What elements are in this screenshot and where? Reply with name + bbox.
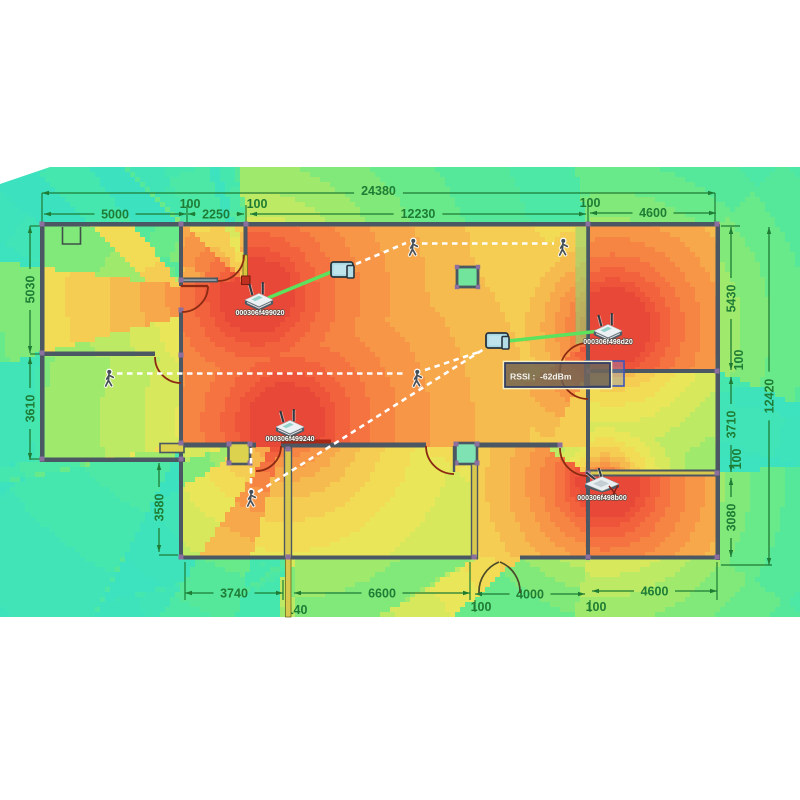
svg-text:5430: 5430 xyxy=(725,285,739,313)
svg-text:100: 100 xyxy=(730,449,744,470)
svg-text:5000: 5000 xyxy=(101,208,129,222)
svg-text:5030: 5030 xyxy=(24,276,38,304)
svg-text:100: 100 xyxy=(732,350,746,371)
svg-text:000306f498b00: 000306f498b00 xyxy=(577,495,627,502)
svg-text:3080: 3080 xyxy=(725,504,739,532)
svg-text:3710: 3710 xyxy=(725,411,739,439)
svg-text:4600: 4600 xyxy=(641,585,669,599)
svg-text:100: 100 xyxy=(586,600,607,614)
svg-text:000306f499020: 000306f499020 xyxy=(235,310,284,317)
svg-text:12420: 12420 xyxy=(763,379,777,414)
svg-text:RSSI :: RSSI : xyxy=(510,372,535,382)
svg-text:100: 100 xyxy=(247,197,268,211)
svg-text:12230: 12230 xyxy=(401,207,436,221)
svg-text:24380: 24380 xyxy=(361,184,396,198)
svg-text:100: 100 xyxy=(471,600,492,614)
svg-text:3610: 3610 xyxy=(24,395,38,423)
svg-text:-62dBm: -62dBm xyxy=(540,372,572,382)
svg-text:2250: 2250 xyxy=(202,208,230,222)
svg-text:000306f498d20: 000306f498d20 xyxy=(583,339,633,346)
svg-text:6600: 6600 xyxy=(368,587,396,601)
svg-text:100: 100 xyxy=(180,197,201,211)
svg-text:000306f499240: 000306f499240 xyxy=(265,436,314,443)
svg-text:3580: 3580 xyxy=(153,494,167,522)
svg-text:3740: 3740 xyxy=(220,587,248,601)
svg-text:4600: 4600 xyxy=(639,206,667,220)
svg-text:100: 100 xyxy=(580,196,601,210)
